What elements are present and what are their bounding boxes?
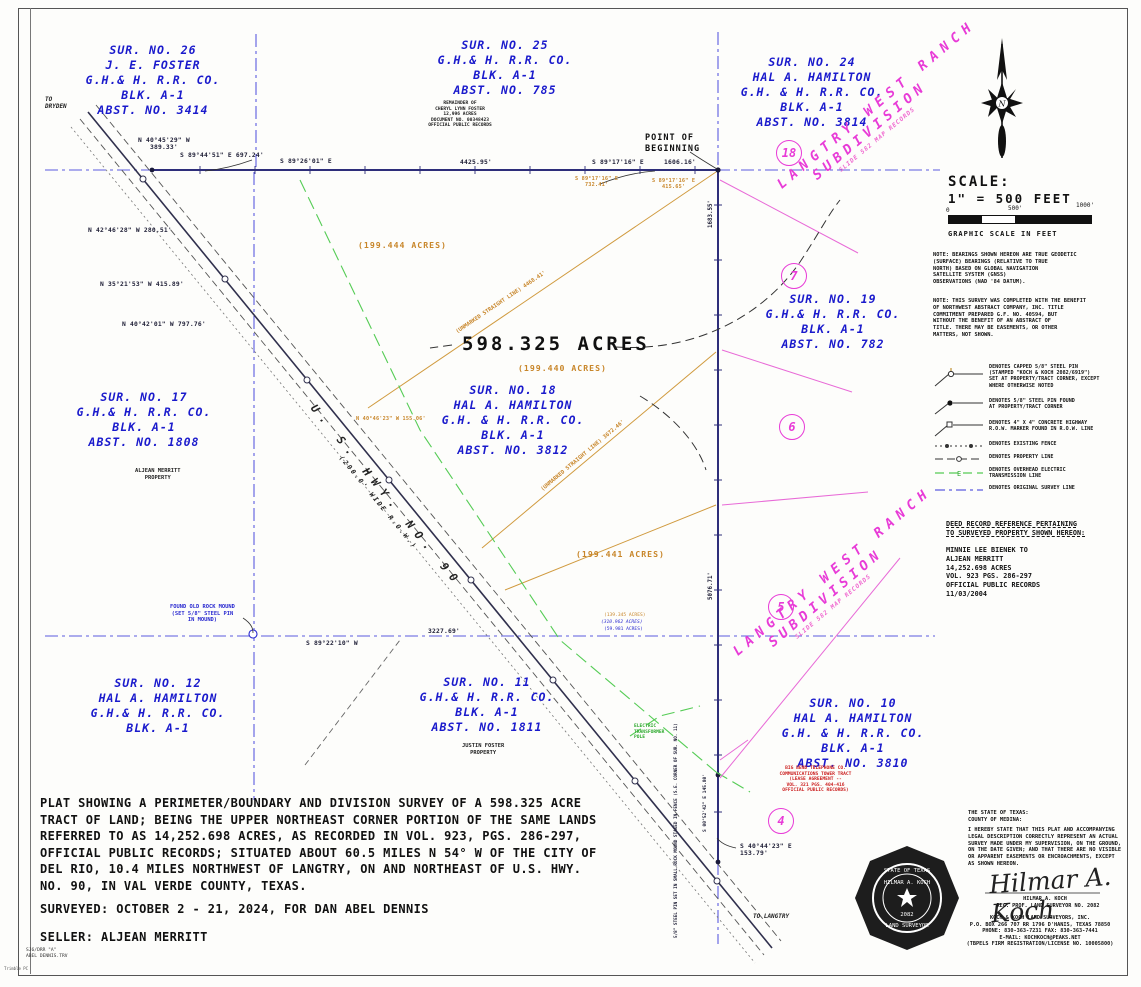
bearing-s8926: S 89°26'01" E (280, 158, 332, 165)
bearing-n4246: N 42°46'28" W 280.51' (88, 227, 172, 234)
bearings-note: NOTE: BEARINGS SHOWN HEREON ARE TRUE GEO… (933, 252, 1128, 286)
survey-block-11: SUR. NO. 11G.H.& H. R.R. CO. BLK. A-1ABS… (357, 675, 617, 735)
legend-item-7: DENOTES ORIGINAL SURVEY LINE (989, 485, 1075, 491)
survey-block-17: SUR. NO. 17G.H.& H. R.R. CO. BLK. A-1ABS… (14, 390, 274, 450)
remainder-foster-note: REMAINDER OF CHERYL LYNN FOSTER 12,996 A… (415, 101, 505, 129)
bearing-n4045: N 40°45'29" W 389.33' (138, 137, 190, 151)
legend: DENOTES CAPPED 5/8" STEEL PIN (STAMPED "… (933, 364, 1128, 506)
point-of-beginning-label: POINT OF BEGINNING (645, 133, 700, 155)
bearing-s8922: S 89°22'10" W (306, 640, 358, 647)
lot-5-badge: 5 (768, 594, 794, 620)
legend-survey-line-icon (933, 484, 985, 496)
legend-found-pin-icon (933, 398, 985, 418)
file-ref-2: ABEL DENNIS.TRV (26, 954, 68, 960)
scale-title: SCALE: (948, 174, 1011, 190)
seller-line: SELLER: ALJEAN MERRITT (40, 929, 208, 946)
dist-1606: 1606.16' (664, 159, 696, 166)
sub-acreage-3: (59.981 ACRES) (604, 627, 643, 633)
legend-item-1: DENOTES CAPPED 5/8" STEEL PIN (STAMPED "… (989, 364, 1099, 389)
transformer-pole-label: ELECTRIC TRANSFORMER POLE (634, 724, 664, 741)
scale-caption: GRAPHIC SCALE IN FEET (948, 230, 1058, 238)
legend-capped-pin-icon (933, 366, 985, 390)
bearing-s0052-vertical: S 00°52'42" E 145.80' (703, 774, 708, 832)
legend-item-4: DENOTES EXISTING FENCE (989, 441, 1056, 447)
survey-block-25: SUR. NO. 25G.H.& H. R.R. CO. BLK. A-1ABS… (375, 38, 635, 98)
title-commitment-note: NOTE: THIS SURVEY WAS COMPLETED WITH THE… (933, 298, 1128, 339)
tract2-acreage: (199.440 ACRES) (518, 363, 607, 373)
legend-item-5: DENOTES PROPERTY LINE (989, 454, 1053, 460)
surveyor-name: HILMAR A. KOCH (985, 896, 1105, 903)
rock-mound-note: FOUND OLD ROCK MOUND (SET 5/8" STEEL PIN… (170, 604, 235, 624)
deed-reference-body: MINNIE LEE BIENEK TO ALJEAN MERRITT 14,2… (946, 546, 1040, 599)
bearing-n4046: N 40°46'23" W 155.06' (356, 416, 426, 422)
bearing-orange-732: S 89°17'16" E 732.41' (575, 176, 618, 188)
deed-reference-title: DEED RECORD REFERENCE PERTAINING TO SURV… (946, 520, 1085, 538)
legend-fence-icon (933, 440, 985, 452)
bearing-n4042: N 40°42'01" W 797.76' (122, 321, 206, 328)
app-ref: Trimble PC (4, 966, 28, 971)
legend-item-3: DENOTES 4" X 4" CONCRETE HIGHWAY R.O.W. … (989, 420, 1093, 432)
dist-5076-vertical: 5076.71' (708, 572, 714, 600)
survey-block-10: SUR. NO. 10HAL A. HAMILTON G.H. & H. R.R… (723, 696, 983, 771)
lot-6-badge: 6 (779, 414, 805, 440)
bearing-orange-415: S 89°17'16" E 415.65' (652, 178, 695, 190)
surveyed-line: SURVEYED: OCTOBER 2 - 21, 2024, FOR DAN … (40, 901, 429, 918)
lot-4-badge: 4 (768, 808, 794, 834)
tract3-acreage: (199.441 ACRES) (576, 549, 665, 559)
bearing-s8944: S 89°44'51" E 697.24' (180, 152, 264, 159)
aljean-merritt-property-label: ALJEAN MERRITT PROPERTY (135, 468, 180, 482)
graphic-scale-bar (948, 215, 1092, 224)
bearing-n3521: N 35°21'53" W 415.89' (100, 281, 184, 288)
to-dryden-label: TO DRYDEN (45, 96, 67, 110)
legend-electric-line-icon: E (933, 466, 985, 480)
total-acreage-label: 598.325 ACRES (462, 333, 650, 355)
bearing-s8917: S 89°17'16" E (592, 159, 644, 166)
dist-1683-vertical: 1683.55' (708, 200, 714, 228)
dist-4425: 4425.95' (460, 159, 492, 166)
sub-acreage-1: (139.345 ACRES) (604, 613, 646, 619)
survey-block-12: SUR. NO. 12HAL A. HAMILTON G.H.& H. R.R.… (28, 676, 288, 736)
plat-description: PLAT SHOWING A PERIMETER/BOUNDARY AND DI… (40, 795, 597, 894)
legend-row-marker-icon (933, 420, 985, 440)
scale-tick-0: 0 (946, 207, 950, 214)
legend-item-2: DENOTES 5/8" STEEL PIN FOUND AT PROPERTY… (989, 398, 1075, 410)
justin-foster-property-label: JUSTIN FOSTER PROPERTY (462, 743, 504, 757)
svg-text:E: E (957, 470, 961, 478)
bigbend-telephone-note: BIG BEND TELEPHONE CO. COMMUNICATIONS TO… (768, 766, 863, 794)
cert-state-county: THE STATE OF TEXAS: COUNTY OF MEDINA: (968, 810, 1029, 824)
scale-ratio: 1" = 500 FEET (948, 191, 1072, 206)
lot-7-badge: 7 (781, 263, 807, 289)
pin-set-note: 5/8" STEEL PIN SET IN SMALL ROCK MOUND S… (674, 723, 680, 938)
surveyor-reg: REG. PROF. LAND SURVEYOR NO. 2082 (968, 903, 1128, 910)
survey-block-19: SUR. NO. 19G.H.& H. R.R. CO. BLK. A-1ABS… (703, 292, 963, 352)
file-ref-1: SJ6/DRR "A" (26, 948, 56, 954)
tract1-acreage: (199.444 ACRES) (358, 240, 447, 250)
survey-plat-page: N STATE OF TEXAS HILMAR A. KOCH 2082 LAN… (0, 0, 1141, 987)
lot-18-badge: 18 (776, 140, 802, 166)
to-langtry-label: TO LANGTRY (753, 913, 789, 920)
dist-3227: 3227.69' (428, 628, 460, 635)
sub-acreage-2: (310.962 ACRES) (601, 620, 643, 626)
legend-item-6: DENOTES OVERHEAD ELECTRIC TRANSMISSION L… (989, 467, 1066, 479)
legend-property-line-icon (933, 453, 985, 465)
bearing-s4044: S 40°44'23" E 153.79' (740, 843, 792, 857)
scale-tick-500: 500' (1008, 205, 1022, 212)
scale-tick-1000: 1000' (1076, 202, 1094, 209)
firm-info: KOCH & KOCH LAND SURVEYORS, INC. P.O. BO… (950, 915, 1130, 948)
